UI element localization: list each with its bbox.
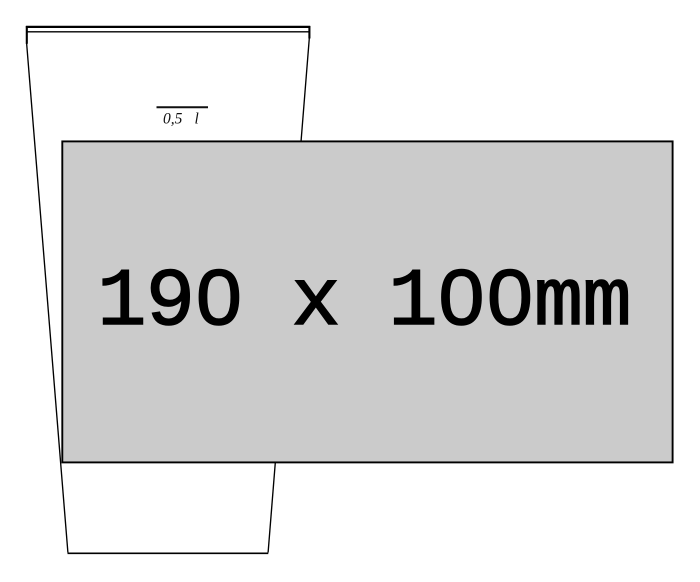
svg-text:l: l <box>195 111 199 128</box>
svg-text:0,5: 0,5 <box>163 111 183 128</box>
svg-text:190 x 100mm: 190 x 100mm <box>97 256 631 349</box>
